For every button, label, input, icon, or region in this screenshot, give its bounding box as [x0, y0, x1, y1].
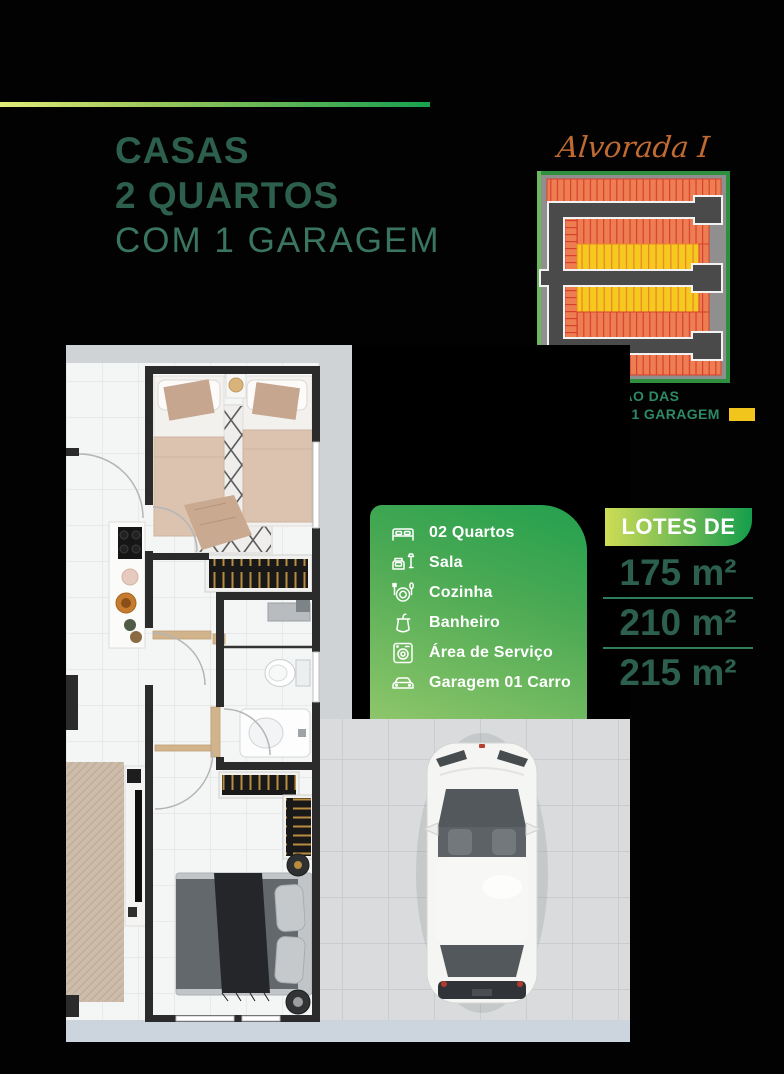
- feature-row: Sala: [390, 548, 587, 578]
- feature-label: Banheiro: [429, 614, 500, 632]
- feature-row: Banheiro: [390, 608, 587, 638]
- feature-row: Cozinha: [390, 578, 587, 608]
- title-line-1: CASAS: [115, 128, 440, 173]
- dining-icon: [390, 580, 416, 606]
- feature-label: Cozinha: [429, 584, 493, 602]
- sidewalk-bottom: [66, 1020, 630, 1042]
- bed-icon: [390, 520, 416, 546]
- sofa-icon: [390, 550, 416, 576]
- highlighted-lots-1: [577, 244, 699, 271]
- title-line-2: 2 QUARTOS: [115, 173, 440, 218]
- development-name: Alvorada I: [535, 130, 732, 164]
- lots-badge: LOTES DE: [605, 508, 752, 546]
- bedroom-1: [153, 370, 314, 553]
- lots-badge-label: LOTES DE: [621, 514, 735, 540]
- feature-row: 02 Quartos: [390, 518, 587, 548]
- kitchen-counter: [109, 522, 145, 648]
- features-panel: 02 Quartos Sala Cozinha: [370, 505, 587, 719]
- legend-swatch: [729, 408, 755, 421]
- shower-icon: [390, 610, 416, 636]
- lot-area-215: 215 m²: [603, 650, 753, 696]
- garage-car: [416, 733, 548, 1013]
- feature-label: Sala: [429, 554, 463, 572]
- car-icon: [390, 670, 416, 696]
- feature-label: Garagem 01 Carro: [429, 674, 571, 692]
- feature-label: Área de Serviço: [429, 644, 553, 662]
- page-title: CASAS 2 QUARTOS COM 1 GARAGEM: [115, 128, 440, 263]
- highlighted-lots-2: [577, 285, 699, 312]
- washer-icon: [390, 640, 416, 666]
- flyer-page: CASAS 2 QUARTOS COM 1 GARAGEM Alvorada I: [0, 0, 784, 1074]
- lot-area-175: 175 m²: [603, 550, 753, 596]
- accent-line: [0, 102, 430, 107]
- lot-areas: 175 m² 210 m² 215 m²: [603, 550, 753, 696]
- divider: [603, 647, 753, 649]
- wardrobe-1: [205, 555, 312, 592]
- feature-row: Área de Serviço: [390, 638, 587, 668]
- feature-row: Garagem 01 Carro: [390, 668, 587, 698]
- lot-area-210: 210 m²: [603, 600, 753, 646]
- feature-label: 02 Quartos: [429, 524, 515, 542]
- divider: [603, 597, 753, 599]
- title-line-3: COM 1 GARAGEM: [115, 218, 440, 263]
